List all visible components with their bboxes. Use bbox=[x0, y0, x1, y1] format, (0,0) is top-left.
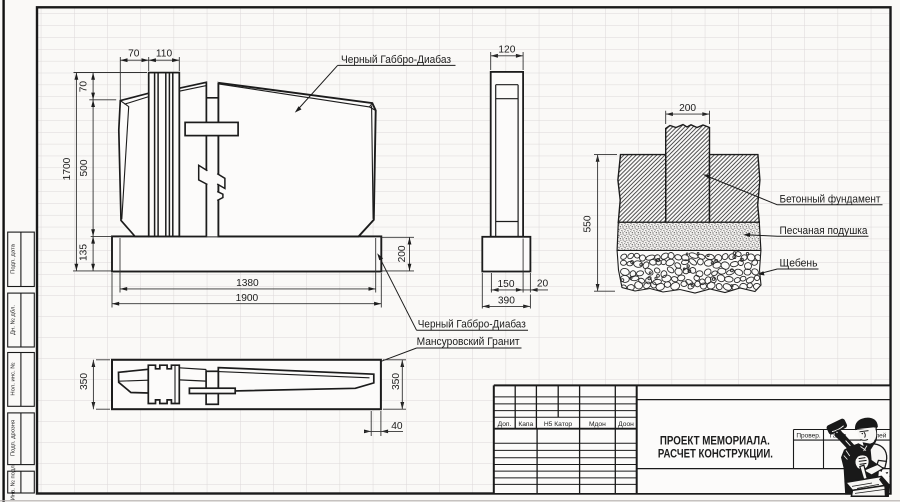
svg-text:1700: 1700 bbox=[62, 157, 73, 180]
svg-text:70: 70 bbox=[79, 81, 90, 93]
svg-text:120: 120 bbox=[498, 44, 515, 55]
svg-text:Доон: Доон bbox=[618, 421, 634, 428]
svg-text:200: 200 bbox=[679, 103, 696, 114]
svg-text:Провер.: Провер. bbox=[796, 433, 821, 440]
svg-text:Бетонный фундамент: Бетонный фундамент bbox=[780, 193, 881, 205]
svg-text:Мдон: Мдон bbox=[589, 421, 606, 428]
svg-text:110: 110 bbox=[156, 49, 173, 60]
svg-text:пей: пей bbox=[876, 432, 887, 440]
svg-text:Песчаная подушка: Песчаная подушка bbox=[780, 225, 869, 237]
svg-text:Черный Габбро-Диабаз: Черный Габбро-Диабаз bbox=[341, 54, 451, 66]
svg-text:Н5 Катор: Н5 Катор bbox=[544, 421, 573, 428]
svg-text:Дн. № дбл.: Дн. № дбл. bbox=[10, 305, 17, 335]
svg-text:135: 135 bbox=[79, 244, 90, 261]
svg-text:150: 150 bbox=[498, 279, 515, 290]
svg-text:1380: 1380 bbox=[236, 278, 259, 289]
svg-text:Подп. дата: Подп. дата bbox=[11, 243, 17, 273]
svg-text:500: 500 bbox=[79, 159, 90, 176]
svg-text:40: 40 bbox=[391, 421, 403, 432]
svg-text:20: 20 bbox=[537, 279, 549, 290]
svg-text:70: 70 bbox=[128, 49, 140, 60]
svg-text:ПРОЕКТ МЕМОРИАЛА.: ПРОЕКТ МЕМОРИАЛА. bbox=[660, 434, 770, 448]
svg-text:Капа: Капа bbox=[518, 421, 533, 428]
svg-text:РАСЧЕТ КОНСТРУКЦИИ.: РАСЧЕТ КОНСТРУКЦИИ. bbox=[658, 447, 773, 461]
svg-text:Мансуровский Гранит: Мансуровский Гранит bbox=[417, 336, 520, 348]
svg-text:Подп. дрозня: Подп. дрозня bbox=[11, 420, 17, 456]
svg-text:Черный Габбро-Диабаз: Черный Габбро-Диабаз bbox=[418, 318, 526, 330]
svg-text:200: 200 bbox=[397, 245, 408, 262]
svg-text:350: 350 bbox=[79, 373, 90, 390]
svg-text:Щебень: Щебень bbox=[780, 258, 818, 270]
svg-text:390: 390 bbox=[498, 295, 515, 306]
svg-text:550: 550 bbox=[582, 215, 593, 232]
svg-text:Инв. № подл.: Инв. № подл. bbox=[10, 463, 17, 500]
svg-text:1900: 1900 bbox=[236, 293, 259, 304]
svg-text:Нол. инс. №: Нол. инс. № bbox=[10, 362, 17, 395]
svg-text:Доп.: Доп. bbox=[498, 421, 512, 428]
svg-text:350: 350 bbox=[391, 373, 402, 390]
